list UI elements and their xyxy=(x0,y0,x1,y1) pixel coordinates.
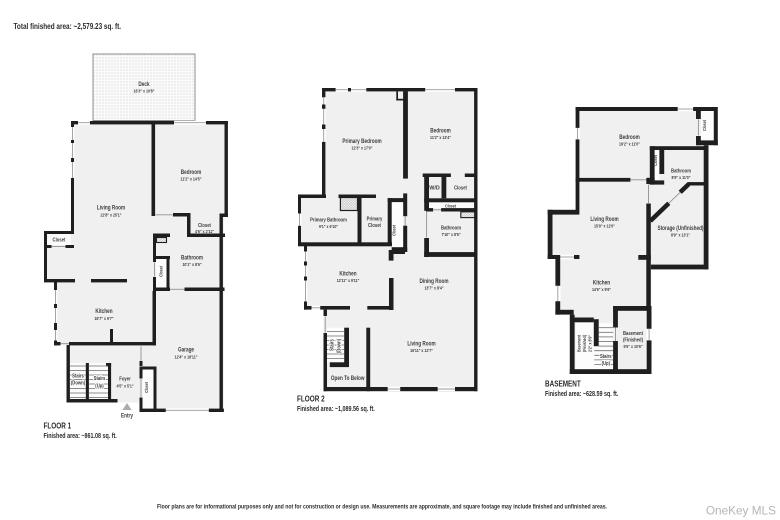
svg-text:Foyer: Foyer xyxy=(119,377,131,383)
svg-text:Closet: Closet xyxy=(454,186,467,192)
svg-text:8'9" x 13'1": 8'9" x 13'1" xyxy=(671,233,690,238)
svg-text:Kitchen: Kitchen xyxy=(95,309,112,315)
svg-text:Deck: Deck xyxy=(138,82,150,88)
svg-text:Finished area: ~1,089.56 sq. f: Finished area: ~1,089.56 sq. ft. xyxy=(297,406,375,413)
svg-text:Primary: Primary xyxy=(367,217,383,223)
svg-text:16'3" x 10'8": 16'3" x 10'8" xyxy=(134,89,155,94)
svg-text:Closet: Closet xyxy=(368,223,381,229)
svg-text:Living Room: Living Room xyxy=(407,342,435,348)
svg-text:(Down): (Down) xyxy=(337,339,343,353)
svg-text:(Up): (Up) xyxy=(95,384,104,390)
svg-text:Stairs: Stairs xyxy=(330,339,336,351)
svg-text:(Up): (Up) xyxy=(602,361,611,367)
svg-text:W/D: W/D xyxy=(429,186,440,192)
svg-text:Stairs: Stairs xyxy=(600,354,612,360)
svg-text:Closet: Closet xyxy=(445,203,456,208)
svg-text:Living Room: Living Room xyxy=(97,206,125,212)
svg-text:Bathroom: Bathroom xyxy=(671,169,691,175)
svg-text:(Finished): (Finished) xyxy=(623,338,643,344)
svg-text:Closet: Closet xyxy=(653,155,658,166)
svg-text:Closet: Closet xyxy=(392,225,397,236)
svg-text:Closet: Closet xyxy=(53,238,66,244)
svg-text:(Finished): (Finished) xyxy=(582,335,587,352)
svg-text:OneKey MLS: OneKey MLS xyxy=(706,504,776,518)
svg-text:Entry: Entry xyxy=(121,414,134,420)
svg-text:13'7" x 8'4": 13'7" x 8'4" xyxy=(424,286,443,291)
svg-text:Bathroom: Bathroom xyxy=(181,256,203,262)
svg-text:2'2" x 8'9": 2'2" x 8'9" xyxy=(588,335,593,352)
svg-text:Storage (Unfinished): Storage (Unfinished) xyxy=(658,226,704,232)
svg-text:Bedroom: Bedroom xyxy=(430,129,451,135)
svg-text:Total finished area: ~2,579.23: Total finished area: ~2,579.23 sq. ft. xyxy=(14,22,122,31)
svg-text:7'10" x 8'5": 7'10" x 8'5" xyxy=(441,232,460,237)
svg-text:Stairs: Stairs xyxy=(72,374,84,380)
svg-text:BASEMENT: BASEMENT xyxy=(545,380,581,389)
svg-text:8'9" x 11'0": 8'9" x 11'0" xyxy=(672,175,691,180)
svg-text:4'5" x 5'1": 4'5" x 5'1" xyxy=(116,384,133,389)
svg-text:Bathroom: Bathroom xyxy=(441,226,461,232)
svg-text:9'1" x 6'10": 9'1" x 6'10" xyxy=(319,224,338,229)
svg-text:Living Room: Living Room xyxy=(590,217,618,223)
svg-text:22'8" x 25'1": 22'8" x 25'1" xyxy=(101,213,122,218)
svg-text:Garage: Garage xyxy=(178,348,195,354)
svg-text:(Down): (Down) xyxy=(71,381,85,387)
svg-text:5'5" x 10'6": 5'5" x 10'6" xyxy=(623,344,642,349)
svg-text:11'2" x 13'4": 11'2" x 13'4" xyxy=(430,135,451,140)
svg-text:Finished area: ~861.08 sq. ft.: Finished area: ~861.08 sq. ft. xyxy=(44,433,117,440)
svg-text:FLOOR 1: FLOOR 1 xyxy=(44,422,72,431)
svg-text:11'2" x 14'5": 11'2" x 14'5" xyxy=(181,177,202,182)
svg-text:14'6" x 9'6": 14'6" x 9'6" xyxy=(592,287,611,292)
svg-text:Primary Bedroom: Primary Bedroom xyxy=(342,139,381,145)
svg-text:Closet: Closet xyxy=(702,120,707,131)
svg-text:16'11" x 12'7": 16'11" x 12'7" xyxy=(410,348,433,353)
svg-text:Basement: Basement xyxy=(577,335,582,352)
svg-text:Open To Below: Open To Below xyxy=(331,376,365,382)
svg-text:FLOOR 2: FLOOR 2 xyxy=(297,395,325,404)
svg-text:Basement: Basement xyxy=(623,331,643,337)
svg-text:12'4" x 18'11": 12'4" x 18'11" xyxy=(175,355,198,360)
svg-text:Finished area: ~628.59 sq. ft.: Finished area: ~628.59 sq. ft. xyxy=(545,391,618,398)
svg-text:Dining Room: Dining Room xyxy=(419,279,448,285)
svg-text:Floor plans are for informatio: Floor plans are for informational purpos… xyxy=(157,504,607,511)
svg-text:19'2" x 11'0": 19'2" x 11'0" xyxy=(619,142,640,147)
svg-text:Closet: Closet xyxy=(159,266,164,277)
svg-text:10'1" x 8'6": 10'1" x 8'6" xyxy=(182,262,201,267)
svg-text:4'6" x 2'11": 4'6" x 2'11" xyxy=(195,229,214,234)
svg-text:15'9" x 12'0": 15'9" x 12'0" xyxy=(594,224,615,229)
svg-text:12'11" x 9'11": 12'11" x 9'11" xyxy=(337,278,360,283)
svg-text:15'7" x 9'7": 15'7" x 9'7" xyxy=(94,316,113,321)
svg-text:Closet: Closet xyxy=(144,382,149,393)
svg-text:Kitchen: Kitchen xyxy=(593,281,610,287)
svg-text:12'3" x 17'0": 12'3" x 17'0" xyxy=(352,146,373,151)
svg-text:Bedroom: Bedroom xyxy=(181,170,202,176)
svg-text:Primary Bathroom: Primary Bathroom xyxy=(310,218,347,224)
svg-text:Kitchen: Kitchen xyxy=(339,272,356,278)
svg-text:Stairs: Stairs xyxy=(94,376,106,382)
svg-text:Bedroom: Bedroom xyxy=(619,135,640,141)
